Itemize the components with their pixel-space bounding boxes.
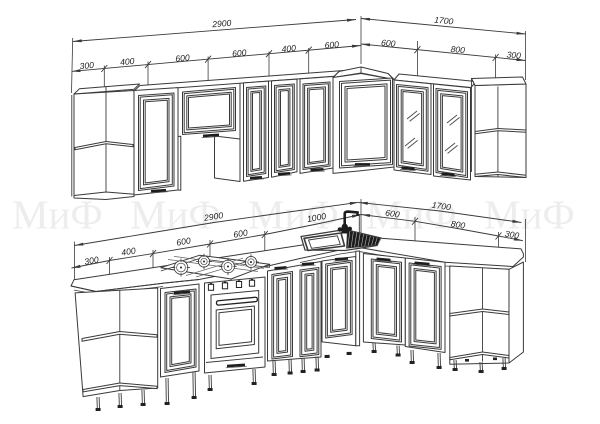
svg-text:300: 300	[506, 49, 521, 60]
svg-text:1700: 1700	[434, 15, 454, 27]
svg-text:600: 600	[232, 47, 247, 58]
svg-text:МиФ: МиФ	[484, 192, 575, 238]
svg-text:МиФ: МиФ	[366, 192, 457, 238]
svg-text:800: 800	[450, 44, 465, 55]
svg-text:400: 400	[120, 56, 135, 67]
svg-text:600: 600	[175, 52, 190, 63]
svg-text:300: 300	[79, 60, 94, 71]
svg-text:400: 400	[281, 43, 296, 54]
svg-text:2900: 2900	[211, 18, 232, 30]
svg-text:600: 600	[324, 39, 339, 50]
svg-text:600: 600	[381, 37, 396, 48]
